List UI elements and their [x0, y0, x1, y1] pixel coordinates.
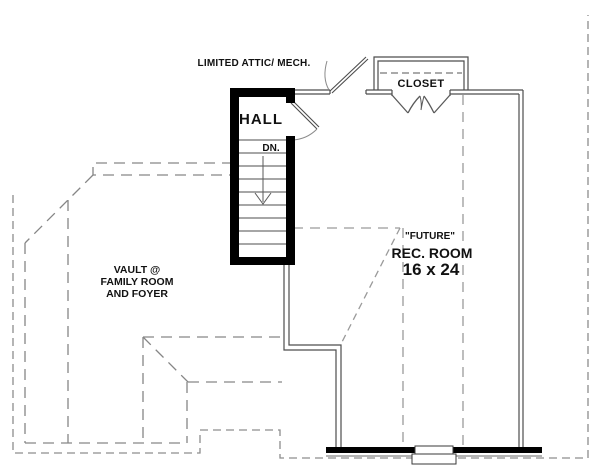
hall-door-swing-arc: [292, 129, 317, 140]
window: [412, 446, 456, 464]
hall-label: HALL: [239, 111, 283, 128]
attic-mech-label: LIMITED ATTIC/ MECH.: [198, 58, 311, 69]
rec-room-label: REC. ROOM: [392, 245, 473, 261]
closet-label: CLOSET: [397, 78, 444, 90]
hall-door-leaf: [291, 101, 319, 129]
stairs-dn-label: DN.: [262, 143, 279, 154]
floor-plan-canvas: LIMITED ATTIC/ MECH. HALL DN. CLOSET "FU…: [0, 0, 600, 466]
rec-room-size-label: 16 x 24: [403, 260, 460, 279]
bottom-exterior-wall: [326, 446, 542, 464]
hall-door: [291, 101, 319, 140]
roof-overhang-dashed-outline: [13, 15, 588, 458]
attic-door: [325, 57, 368, 93]
future-label: "FUTURE": [405, 231, 455, 242]
attic-door-swing-arc: [325, 61, 329, 90]
floor-plan-page: LIMITED ATTIC/ MECH. HALL DN. CLOSET "FU…: [0, 0, 600, 466]
attic-door-leaf: [330, 57, 368, 93]
closet-bifold-doors: [392, 95, 450, 113]
vault-note-line1: VAULT @: [114, 264, 161, 276]
vault-note-line3: AND FOYER: [106, 288, 168, 300]
vault-note-line2: FAMILY ROOM: [101, 276, 174, 288]
stairs-down-arrow: [255, 156, 271, 204]
